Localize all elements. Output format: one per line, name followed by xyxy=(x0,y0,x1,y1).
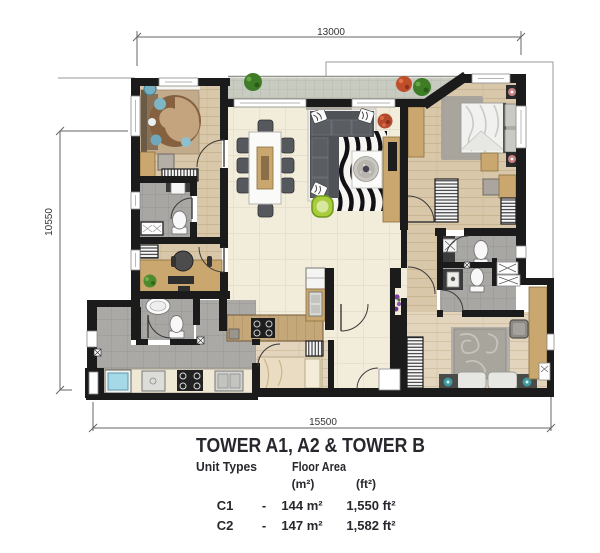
svg-text:Floor Area: Floor Area xyxy=(292,459,347,474)
svg-text:C2: C2 xyxy=(217,518,234,533)
svg-text:1,582 ft²: 1,582 ft² xyxy=(346,518,396,533)
svg-text:-: - xyxy=(262,498,266,513)
svg-text:Unit Types: Unit Types xyxy=(196,459,257,474)
svg-text:10550: 10550 xyxy=(44,208,55,236)
svg-text:15500: 15500 xyxy=(309,417,337,428)
svg-text:TOWER A1, A2 & TOWER B: TOWER A1, A2 & TOWER B xyxy=(196,435,425,457)
svg-text:C1: C1 xyxy=(217,498,234,513)
svg-text:(ft²): (ft²) xyxy=(356,477,376,491)
svg-text:13000: 13000 xyxy=(317,27,345,38)
svg-text:1,550 ft²: 1,550 ft² xyxy=(346,498,396,513)
svg-text:144 m²: 144 m² xyxy=(281,498,323,513)
svg-text:(m²): (m²) xyxy=(292,477,315,491)
svg-text:147 m²: 147 m² xyxy=(281,518,323,533)
svg-text:-: - xyxy=(262,518,266,533)
